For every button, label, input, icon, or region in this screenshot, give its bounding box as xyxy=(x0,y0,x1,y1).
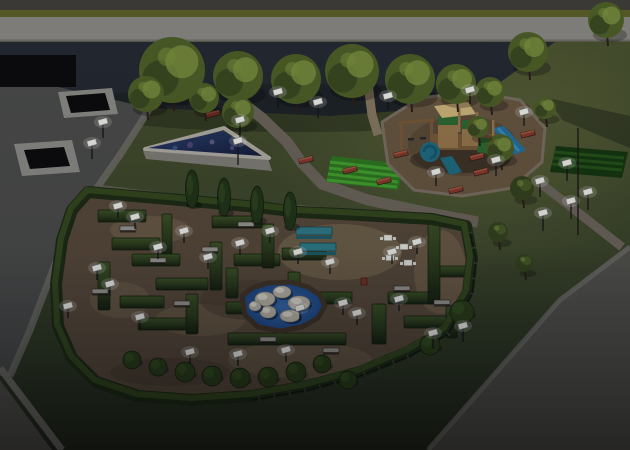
park-3d-render xyxy=(0,0,630,450)
vignette xyxy=(0,0,630,450)
render-canvas xyxy=(0,0,630,450)
